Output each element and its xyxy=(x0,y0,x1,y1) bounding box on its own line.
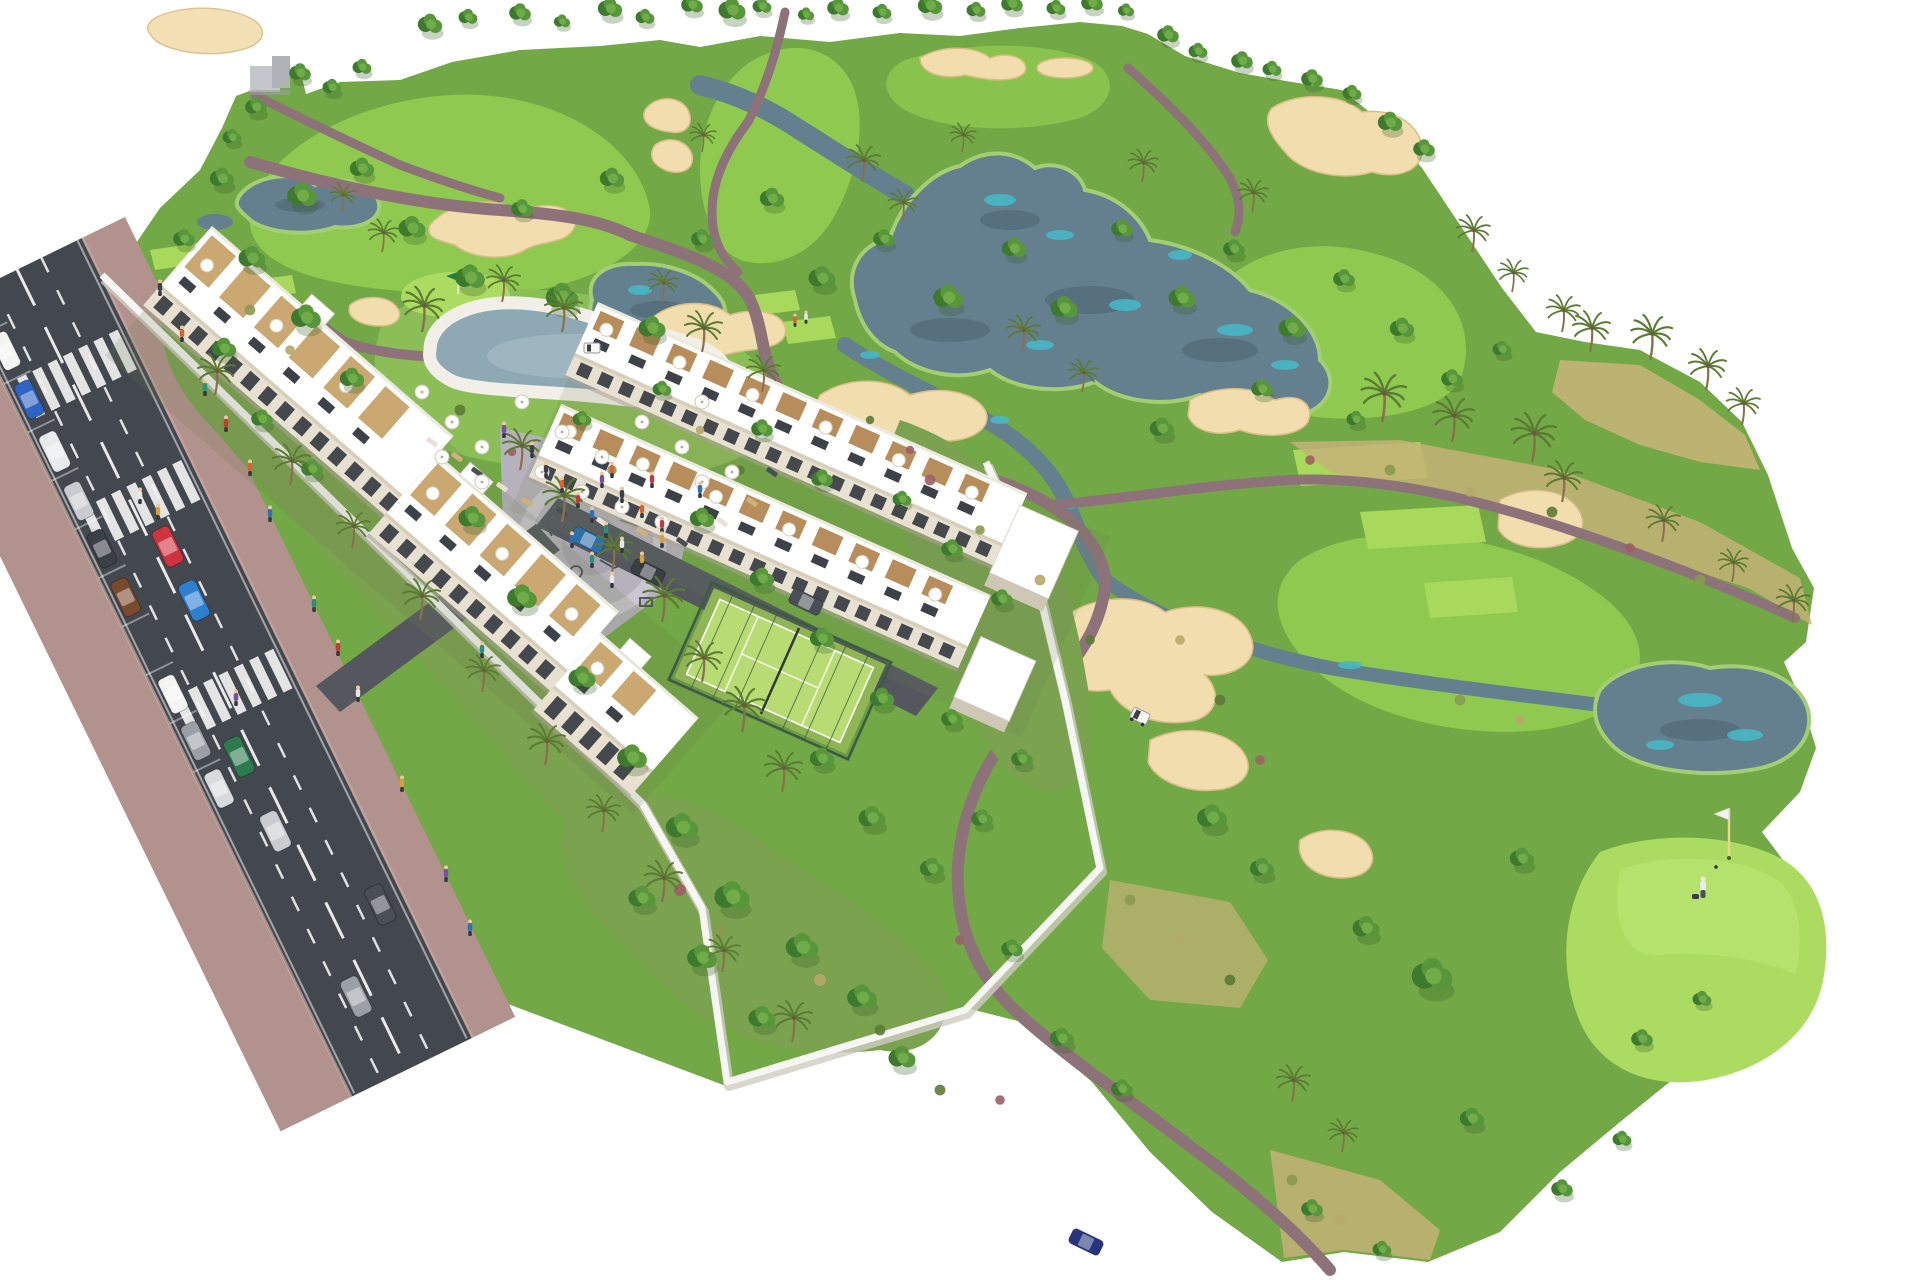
bush-icon xyxy=(1255,755,1265,765)
umbrella-icon xyxy=(445,415,459,429)
tree-icon xyxy=(418,14,444,40)
umbrella-icon xyxy=(595,450,609,464)
tree-icon xyxy=(1047,0,1067,20)
bush-icon xyxy=(245,305,256,316)
tree-icon xyxy=(681,0,704,18)
bush-icon xyxy=(935,1085,946,1096)
person-icon xyxy=(530,442,534,459)
bush-icon xyxy=(1335,1215,1345,1225)
bush-icon xyxy=(1515,715,1525,725)
person-icon xyxy=(480,642,484,659)
bush-icon xyxy=(1625,543,1635,553)
umbrella-icon xyxy=(515,395,529,409)
bush-icon xyxy=(1385,465,1396,476)
tree-icon xyxy=(1001,0,1024,17)
tree-icon xyxy=(798,7,815,24)
tree-icon xyxy=(353,59,373,79)
tree-icon xyxy=(753,0,773,18)
person-icon xyxy=(698,482,702,499)
bush-icon xyxy=(455,405,466,416)
bush-icon xyxy=(1695,575,1706,586)
tree-icon xyxy=(967,2,987,22)
bush-icon xyxy=(1305,455,1315,465)
bush-icon xyxy=(1547,507,1558,518)
person-icon xyxy=(640,502,644,519)
car-icon xyxy=(1067,1227,1104,1256)
golf-cart xyxy=(584,343,600,353)
tree-icon xyxy=(719,0,748,27)
person-icon xyxy=(650,472,654,489)
bush-icon xyxy=(925,475,936,486)
palm-tree-icon xyxy=(1498,259,1528,292)
person-icon xyxy=(224,416,228,433)
bush-icon xyxy=(866,416,874,424)
tree-icon xyxy=(1231,51,1254,74)
bush-icon xyxy=(1287,1175,1298,1186)
bush-icon xyxy=(814,974,826,986)
person-icon xyxy=(604,522,608,539)
tree-icon xyxy=(1613,1131,1633,1151)
umbrella-icon xyxy=(725,465,739,479)
tree-icon xyxy=(459,9,479,29)
bush-icon xyxy=(995,1095,1005,1105)
person-icon xyxy=(620,487,624,504)
person-icon xyxy=(468,920,472,937)
person-icon xyxy=(400,776,404,793)
person-icon xyxy=(640,552,644,569)
person-icon xyxy=(268,506,272,523)
person-icon xyxy=(660,517,664,534)
tree-icon xyxy=(1551,1179,1574,1202)
tree-icon xyxy=(1081,0,1104,16)
person-icon xyxy=(590,507,594,524)
person-icon xyxy=(180,326,184,343)
tree-icon xyxy=(873,4,893,24)
person-icon xyxy=(156,504,160,521)
bush-icon xyxy=(1035,575,1046,586)
umbrella-icon xyxy=(475,440,489,454)
bush-icon xyxy=(1455,695,1466,706)
person-icon xyxy=(570,532,574,549)
person-icon xyxy=(544,462,548,479)
bush-icon xyxy=(715,925,726,936)
bush-icon xyxy=(1175,935,1185,945)
golf-ball xyxy=(1714,865,1718,869)
bush-icon xyxy=(906,446,914,454)
person-icon xyxy=(610,462,614,479)
umbrella-icon xyxy=(415,385,429,399)
pond-east xyxy=(1595,662,1809,773)
person-icon xyxy=(336,640,340,657)
person-icon xyxy=(234,690,238,707)
tree-icon xyxy=(636,9,656,29)
bush-icon xyxy=(696,426,704,434)
person-icon xyxy=(444,866,448,883)
bush-icon xyxy=(1225,975,1236,986)
bush-icon xyxy=(1125,895,1136,906)
bush-icon xyxy=(1465,487,1475,497)
tree-icon xyxy=(918,0,944,21)
person-icon xyxy=(248,460,252,477)
palm-tree-icon xyxy=(1547,295,1580,332)
person-icon xyxy=(660,532,664,549)
person-icon xyxy=(158,280,162,297)
person-icon xyxy=(576,492,580,509)
tree-icon xyxy=(509,3,532,26)
person-icon xyxy=(610,572,614,589)
umbrella-icon xyxy=(475,475,489,489)
scene-canvas: Aerial 3D render of a golf resort reside… xyxy=(0,0,1920,1280)
bush-icon xyxy=(285,345,295,355)
umbrella-icon xyxy=(695,395,709,409)
umbrella-icon xyxy=(675,440,689,454)
person-icon xyxy=(590,552,594,569)
umbrella-icon xyxy=(635,415,649,429)
bush-icon xyxy=(1215,695,1226,706)
person-icon xyxy=(203,380,207,397)
bush-icon xyxy=(875,1025,886,1036)
tree-icon xyxy=(827,0,850,21)
umbrella-icon xyxy=(555,425,569,439)
bush-icon xyxy=(975,525,985,535)
bush-icon xyxy=(1175,635,1185,645)
person-icon xyxy=(356,686,360,703)
umbrella-icon xyxy=(435,450,449,464)
tree-icon xyxy=(1118,3,1135,20)
person-icon xyxy=(600,472,604,489)
person-icon xyxy=(312,596,316,613)
person-icon xyxy=(138,488,142,505)
bush-icon xyxy=(955,935,965,945)
person-icon xyxy=(620,537,624,554)
tree-icon xyxy=(554,14,571,31)
bush-icon xyxy=(1085,635,1095,645)
person-icon xyxy=(560,477,564,494)
person-icon xyxy=(502,422,506,439)
aerial-render: Aerial 3D render of a golf resort reside… xyxy=(0,0,1920,1280)
tree-icon xyxy=(598,0,624,24)
